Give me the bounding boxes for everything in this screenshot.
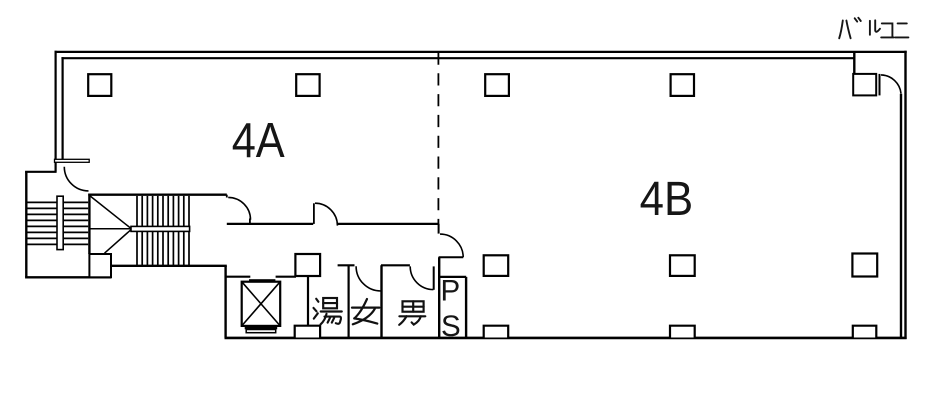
svg-text:4B: 4B [640, 172, 694, 226]
svg-text:S: S [441, 310, 461, 343]
svg-text:4A: 4A [232, 113, 285, 168]
svg-text:P: P [441, 274, 461, 307]
